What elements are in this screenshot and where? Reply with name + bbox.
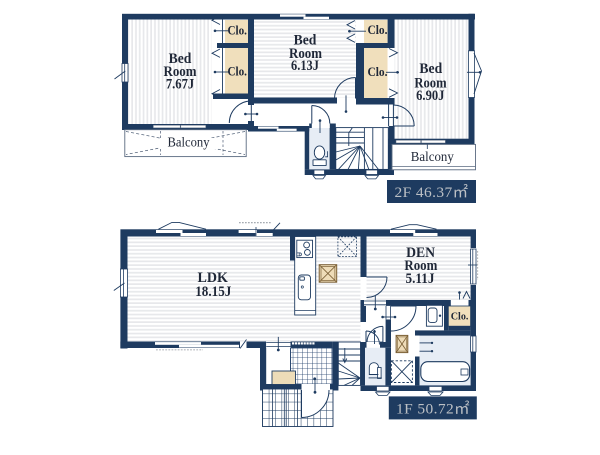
svg-text:5.11J: 5.11J [406,271,435,287]
svg-text:18.15J: 18.15J [195,284,231,300]
svg-text:Clo.: Clo. [451,310,469,322]
svg-text:7.67J: 7.67J [166,77,194,93]
svg-text:Balcony: Balcony [411,150,454,165]
svg-text:Clo.: Clo. [368,23,388,37]
svg-text:Clo.: Clo. [227,64,247,78]
svg-text:2F 46.37㎡: 2F 46.37㎡ [395,184,469,201]
svg-text:Balcony: Balcony [168,135,210,150]
svg-text:Clo.: Clo. [368,65,388,79]
svg-text:6.90J: 6.90J [416,88,444,104]
svg-text:1F 50.72㎡: 1F 50.72㎡ [396,400,470,417]
svg-text:Clo.: Clo. [227,24,247,38]
svg-text:6.13J: 6.13J [291,58,319,74]
